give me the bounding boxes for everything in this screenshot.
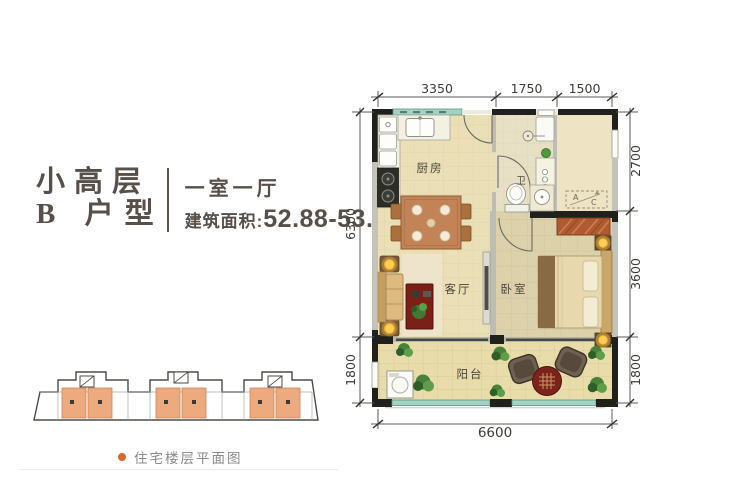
- dim-bottom-1: 6600: [478, 425, 512, 441]
- ac-label-a: A: [573, 193, 579, 202]
- dim-top-2: 1750: [511, 81, 543, 96]
- floorplan-graphic: 厨房: [0, 0, 750, 500]
- dim-top-3: 1500: [569, 81, 601, 96]
- floorplan-page: 小高层 B 户型 一室一厅 建筑面积:52.88-53.88m2: [0, 0, 750, 500]
- caption-text: 住宅楼层平面图: [134, 447, 243, 467]
- dim-left-1: 6300: [343, 208, 358, 240]
- balcony-sliding-door-right: [506, 339, 596, 342]
- overview-caption: 住宅楼层平面图: [118, 447, 243, 467]
- kitchen-label: 厨房: [417, 162, 444, 175]
- bath-plant: [542, 149, 551, 158]
- entry-door-leaf: [538, 110, 554, 116]
- bedroom-label: 卧室: [501, 282, 528, 296]
- dim-left-2: 1800: [343, 354, 358, 386]
- balcony-label: 阳台: [457, 367, 484, 381]
- dim-top-1: 3350: [421, 81, 453, 96]
- floor-lamp: [385, 260, 395, 270]
- building-overview-graphic: [34, 372, 318, 420]
- caption-bullet-icon: [118, 453, 126, 461]
- tv: [485, 266, 489, 310]
- bed-headboard: [601, 250, 612, 334]
- caption-divider-line: [20, 469, 338, 470]
- living-label: 客厅: [445, 282, 472, 296]
- entry-side-window: [612, 130, 618, 158]
- kitchen-sink-cabinet: [380, 134, 397, 149]
- dining-set: [391, 196, 471, 249]
- bath-label: 卫: [516, 176, 526, 187]
- pillow: [583, 261, 598, 291]
- balcony-window-left: [392, 400, 490, 406]
- dim-right-3: 1800: [628, 354, 643, 386]
- balcony-side-window: [372, 362, 378, 388]
- balcony-window-right: [512, 400, 596, 406]
- kitchen-door-opening: [462, 110, 492, 114]
- balcony-sliding-door-left: [396, 339, 488, 342]
- ac-label-c: C: [591, 198, 597, 207]
- dim-right-2: 3600: [628, 258, 643, 290]
- ac-platform-floor: [560, 186, 612, 211]
- dim-right-1: 2700: [628, 145, 643, 177]
- sofa: [386, 274, 403, 320]
